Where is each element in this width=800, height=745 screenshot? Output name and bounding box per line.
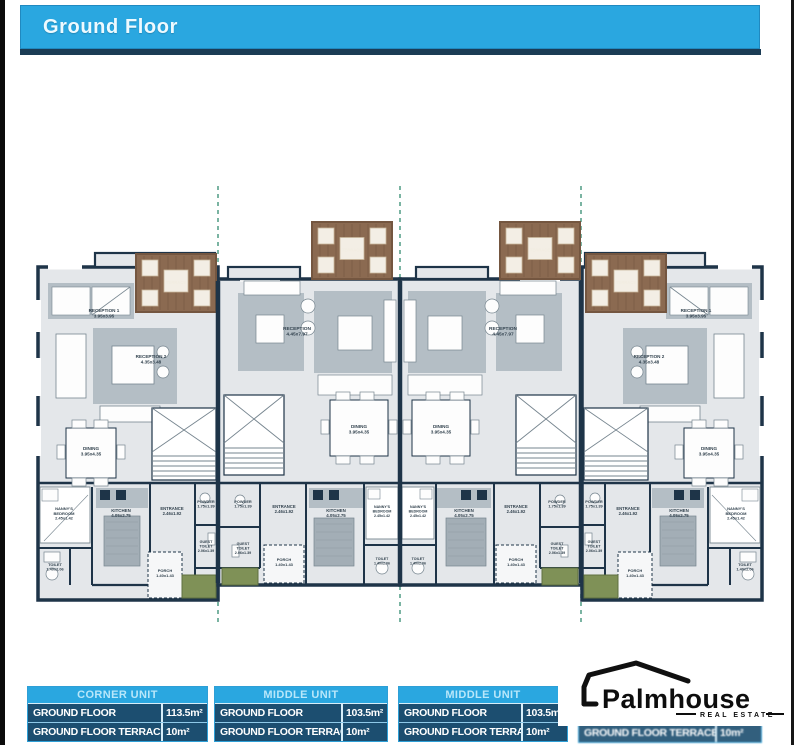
room-label-toilet: TOILET1.40x2.06 (410, 557, 426, 565)
room-label-guest-toilet: GUESTTOILET2.06x1.39 (586, 540, 602, 553)
room-label-guest-toilet: GUESTTOILET2.06x1.39 (235, 542, 251, 555)
row-label: GROUND FLOOR (28, 704, 161, 722)
row-label: GROUND FLOOR TERRACE (579, 724, 715, 742)
unit-table-row: GROUND FLOOR103.5m² (215, 704, 387, 723)
room-label-reception: RECEPTION4.45x7.97 (283, 326, 312, 338)
room-label-toilet: TOILET1.40x2.06 (46, 562, 64, 572)
room-label-porch: PORCH1.40x1.43 (275, 557, 294, 567)
room-label-entrance: ENTRANCE2.46x1.92 (616, 506, 639, 516)
unit-table-row: GROUND FLOOR TERRACE10m² (215, 723, 387, 741)
unit-table-3: MIDDLE UNITGROUND FLOOR103.5m²GROUND FLO… (398, 686, 568, 742)
room-label-powder: POWDER1.75x1.39 (548, 499, 566, 509)
row-label: GROUND FLOOR (399, 704, 521, 722)
room-label-dining: DINING3.95x4.35 (349, 424, 370, 434)
room-label-powder: POWDER1.75x1.39 (234, 499, 252, 509)
room-label-entrance: ENTRANCE2.46x1.92 (272, 504, 295, 514)
room-label-toilet: TOILET1.40x2.06 (374, 557, 390, 565)
terrace-label: TERRACE (530, 248, 550, 253)
room-label-kitchen: KITCHEN4.05x2.75 (326, 508, 346, 518)
room-label-nanny: NANNY'SBEDROOM2.45x1.42 (409, 505, 428, 518)
terrace-label: TERRACE (166, 280, 186, 285)
room-label-kitchen: KITCHEN4.05x2.75 (111, 508, 131, 518)
room-label-powder: POWDER1.75x1.39 (197, 499, 215, 509)
brand-logo: Palmhouse REAL ESTATE (558, 652, 791, 726)
logo-tagline-text: REAL ESTATE (700, 712, 775, 719)
room-label-guest-toilet: GUESTTOILET2.06x1.39 (198, 540, 214, 553)
room-label-nanny: NANNY'SBEDROOM2.45x1.42 (54, 506, 76, 521)
room-label-kitchen: KITCHEN4.05x2.75 (454, 508, 474, 518)
room-label-porch: PORCH1.40x1.43 (156, 568, 175, 578)
room-label-nanny: NANNY'SBEDROOM2.45x1.42 (726, 506, 748, 521)
row-value: 10m² (715, 724, 761, 742)
unit-table-1: CORNER UNITGROUND FLOOR113.5m²GROUND FLO… (27, 686, 208, 742)
row-value: 10m² (161, 723, 207, 741)
floor-plan-drawing: RECEPTION 13.95x3.95RECEPTION 24.35x3.48… (0, 0, 800, 745)
unit-table-row: GROUND FLOOR113.5m² (28, 704, 207, 723)
room-label-entrance: ENTRANCE2.46x1.92 (160, 506, 183, 516)
room-label-reception: RECEPTION4.45x7.97 (489, 326, 518, 338)
room-label-porch: PORCH1.40x1.43 (626, 568, 645, 578)
unit-table-row: GROUND FLOOR TERRACE10m² (579, 724, 761, 742)
floorplan-page: Ground Floor RECEPTION 13.95x3.95RECEPTI… (0, 0, 800, 745)
room-label-guest-toilet: GUESTTOILET2.06x1.39 (549, 542, 565, 555)
unit-table-header: MIDDLE UNIT (399, 687, 567, 704)
unit-table-header: CORNER UNIT (28, 687, 207, 704)
unit-table-row: GROUND FLOOR103.5m² (399, 704, 567, 723)
terrace-label: TERRACE (342, 248, 362, 253)
room-label-kitchen: KITCHEN4.05x2.75 (669, 508, 689, 518)
terrace-label: TERRACE (616, 280, 636, 285)
room-label-dining: DINING3.95x4.35 (81, 446, 102, 456)
room-label-toilet: TOILET1.40x2.06 (736, 562, 754, 572)
unit-table-row: GROUND FLOOR TERRACE10m² (399, 723, 567, 741)
logo-brand-text: Palmhouse (602, 684, 751, 714)
room-label-entrance: ENTRANCE2.46x1.92 (504, 504, 527, 514)
room-label-porch: PORCH1.40x1.43 (507, 557, 526, 567)
room-label-dining: DINING3.95x4.35 (431, 424, 452, 434)
unit-table-row: GROUND FLOOR TERRACE10m² (28, 723, 207, 741)
row-label: GROUND FLOOR (215, 704, 341, 722)
palmhouse-logo-icon: Palmhouse REAL ESTATE (558, 652, 791, 726)
row-label: GROUND FLOOR TERRACE (28, 723, 161, 741)
room-label-dining: DINING3.95x4.35 (699, 446, 720, 456)
unit-table-header: MIDDLE UNIT (215, 687, 387, 704)
row-value: 10m² (341, 723, 387, 741)
unit-table-2: MIDDLE UNITGROUND FLOOR103.5m²GROUND FLO… (214, 686, 388, 742)
row-label: GROUND FLOOR TERRACE (215, 723, 341, 741)
room-label-nanny: NANNY'SBEDROOM2.45x1.42 (373, 505, 392, 518)
room-label-powder: POWDER1.75x1.39 (585, 499, 603, 509)
row-value: 113.5m² (161, 704, 207, 722)
row-value: 103.5m² (341, 704, 387, 722)
row-label: GROUND FLOOR TERRACE (399, 723, 521, 741)
